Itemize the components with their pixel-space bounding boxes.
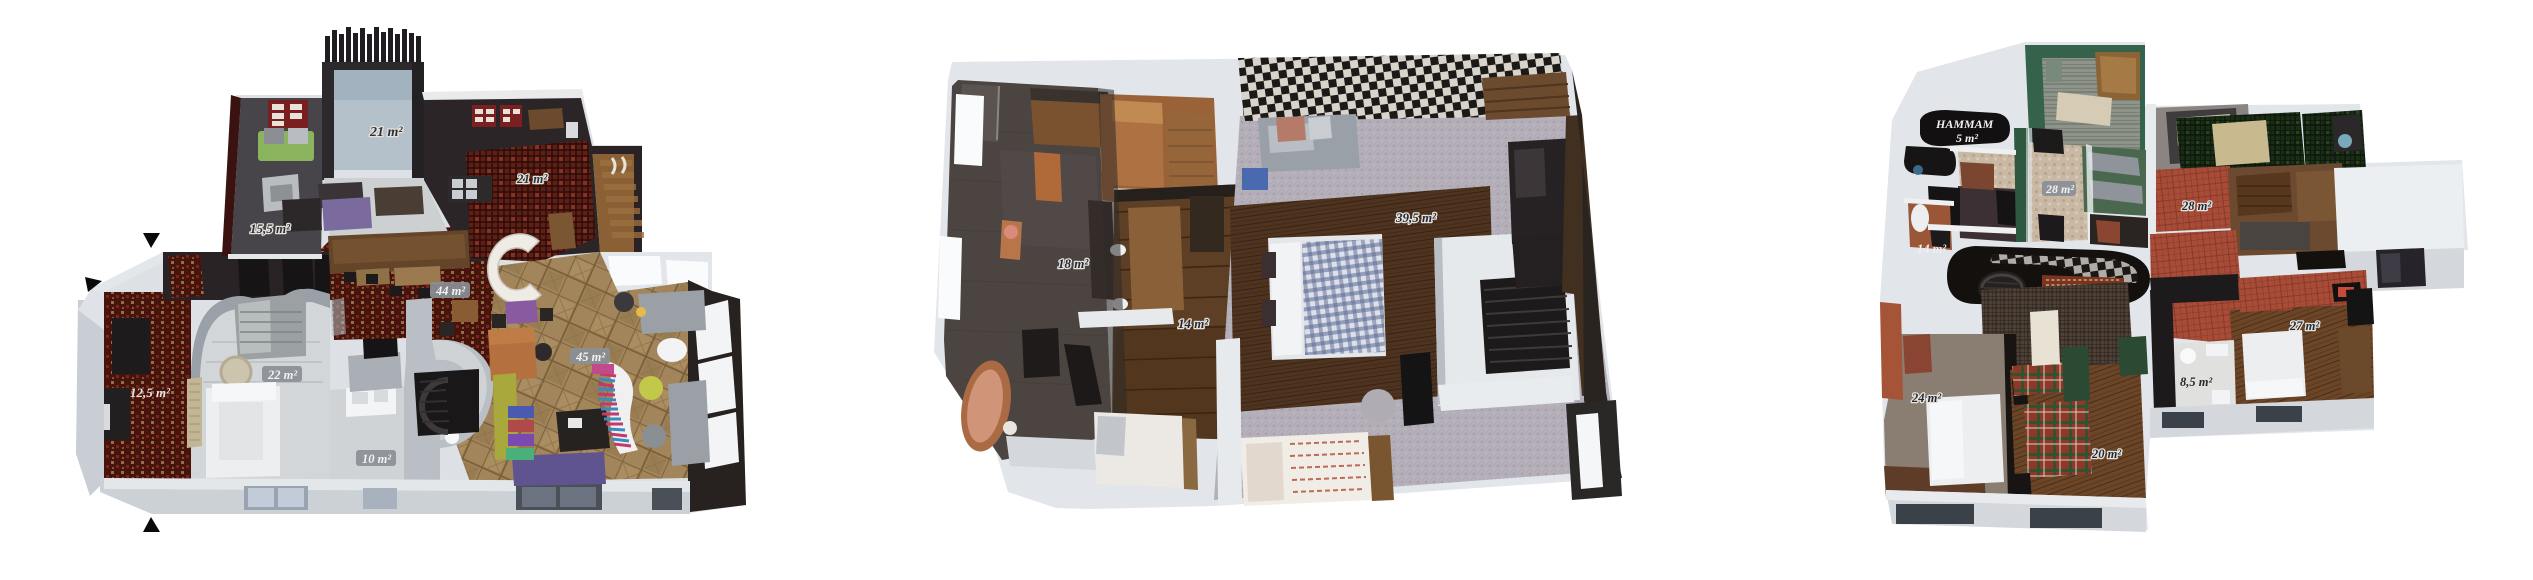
svg-text:18 m²: 18 m² — [1058, 256, 1089, 271]
svg-text:HAMMAM: HAMMAM — [1935, 117, 1994, 131]
svg-text:21 m²: 21 m² — [369, 125, 403, 140]
svg-text:22 m²: 22 m² — [267, 368, 297, 382]
svg-text:10 m²: 10 m² — [362, 452, 391, 466]
svg-text:15,5 m²: 15,5 m² — [250, 221, 291, 236]
svg-text:21 m²: 21 m² — [516, 171, 548, 186]
svg-text:45 m²: 45 m² — [575, 350, 605, 364]
svg-text:14 m²: 14 m² — [1178, 316, 1209, 331]
svg-text:28 m²: 28 m² — [2181, 199, 2211, 213]
svg-text:44 m²: 44 m² — [435, 284, 465, 298]
svg-text:24 m²: 24 m² — [1911, 391, 1941, 405]
svg-text:12,5 m²: 12,5 m² — [130, 385, 171, 400]
svg-text:14 m²: 14 m² — [1917, 242, 1946, 256]
svg-text:27 m²: 27 m² — [2289, 319, 2319, 333]
svg-text:5 m²: 5 m² — [1956, 131, 1978, 145]
svg-text:39,5 m²: 39,5 m² — [1395, 210, 1437, 225]
svg-text:28 m²: 28 m² — [2045, 182, 2074, 196]
svg-text:8,5 m²: 8,5 m² — [2180, 375, 2212, 389]
svg-text:20 m²: 20 m² — [2091, 447, 2121, 461]
